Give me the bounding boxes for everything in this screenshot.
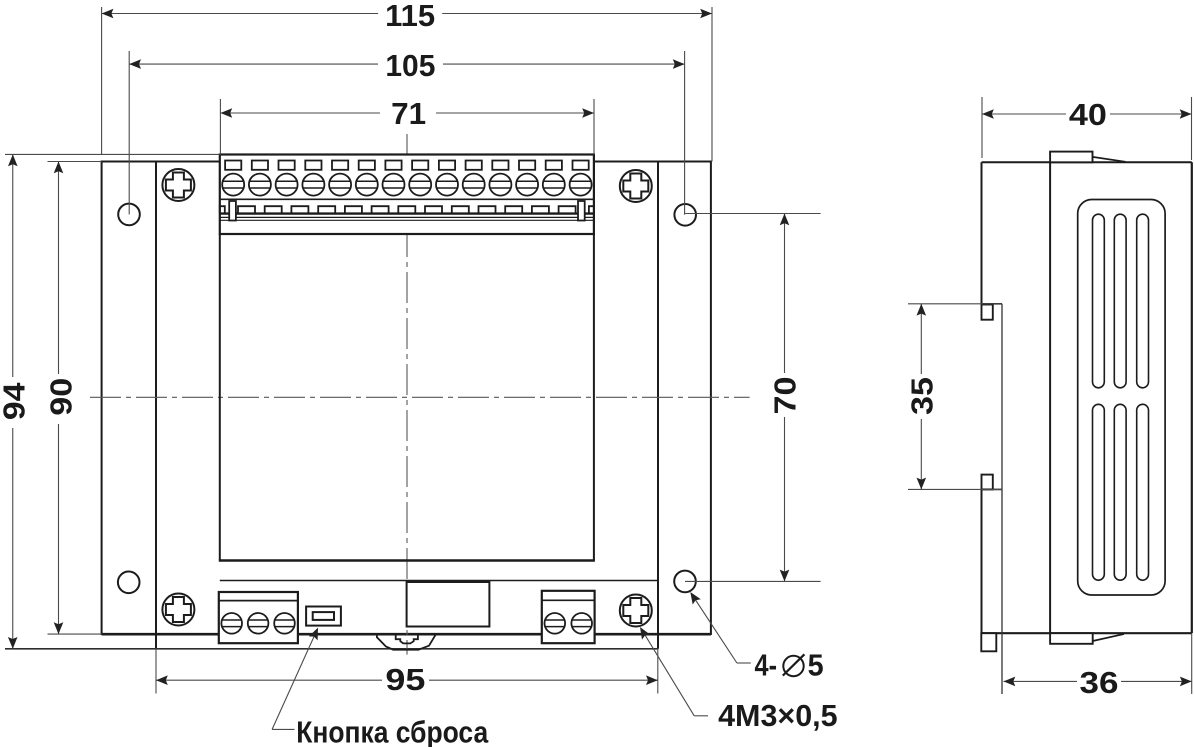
- svg-text:Кнопка сброса: Кнопка сброса: [296, 714, 489, 747]
- svg-text:115: 115: [385, 0, 435, 33]
- svg-text:4-: 4-: [755, 648, 778, 683]
- svg-text:70: 70: [768, 377, 803, 415]
- svg-text:40: 40: [1069, 97, 1107, 132]
- svg-text:95: 95: [385, 662, 425, 697]
- svg-text:36: 36: [1080, 665, 1119, 700]
- svg-text:4М3×0,5: 4М3×0,5: [718, 698, 838, 733]
- svg-text:94: 94: [0, 382, 32, 420]
- svg-text:5: 5: [808, 648, 824, 683]
- svg-text:35: 35: [905, 377, 940, 415]
- svg-text:71: 71: [391, 96, 426, 131]
- svg-text:90: 90: [44, 378, 79, 416]
- svg-text:105: 105: [385, 48, 435, 83]
